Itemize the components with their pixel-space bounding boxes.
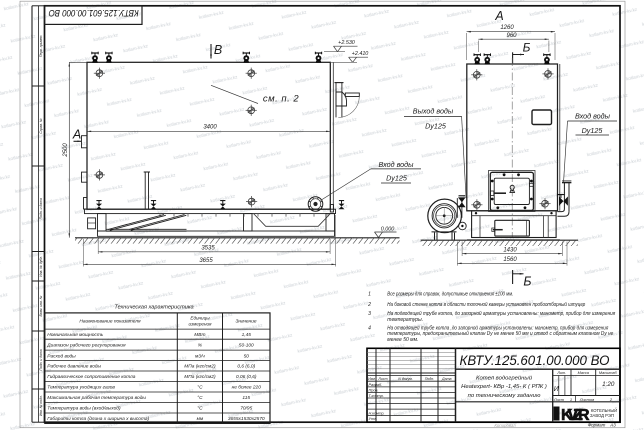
svg-text:Лист: Лист: [553, 397, 565, 402]
svg-text:1560: 1560: [503, 257, 517, 263]
svg-text:Справ. №: Справ. №: [39, 118, 43, 134]
svg-text:см. п. 2: см. п. 2: [263, 94, 300, 105]
svg-text:КВТУ.125.601.00.000 ВО: КВТУ.125.601.00.000 ВО: [49, 8, 139, 18]
svg-text:Рабочее давление воды: Рабочее давление воды: [47, 364, 101, 370]
svg-text:Единицы: Единицы: [190, 315, 210, 320]
svg-text:Dy125: Dy125: [386, 174, 408, 183]
svg-text:N докум.: N докум.: [398, 377, 413, 381]
svg-text:Вход воды: Вход воды: [575, 111, 611, 120]
svg-text:Техническая характеристика: Техническая характеристика: [114, 304, 193, 310]
svg-text:МПа (кгс/см2): МПа (кгс/см2): [184, 374, 216, 380]
svg-text:Инв. № дубл.: Инв. № дубл.: [39, 256, 43, 277]
svg-text:Копировал: Копировал: [494, 423, 516, 428]
svg-text:1260: 1260: [500, 25, 514, 31]
svg-text:+2.410: +2.410: [352, 51, 369, 57]
svg-text:+2.530: +2.530: [338, 40, 355, 46]
svg-text:Утв.: Утв.: [369, 417, 378, 421]
svg-text:Масштаб: Масштаб: [599, 371, 618, 375]
svg-text:1,45: 1,45: [242, 332, 252, 338]
svg-text:Лит.: Лит.: [556, 371, 566, 375]
svg-text:Б: Б: [523, 275, 531, 289]
svg-text:3: 3: [368, 311, 371, 317]
svg-text:температуры, предохранительный: температуры, предохранительный клапан Dу…: [387, 330, 613, 337]
svg-text:50: 50: [244, 353, 250, 359]
svg-text:Подп. и дата: Подп. и дата: [39, 349, 43, 370]
svg-text:Значение: Значение: [235, 319, 256, 325]
svg-text:Dy125: Dy125: [582, 126, 604, 135]
svg-text:%: %: [198, 343, 203, 349]
svg-text:0,6 (6,0): 0,6 (6,0): [237, 364, 255, 370]
svg-text:0.000: 0.000: [381, 226, 395, 232]
svg-text:3655х1530х2570: 3655х1530х2570: [228, 416, 265, 422]
svg-text:Температура уходящих газов: Температура уходящих газов: [47, 385, 115, 391]
svg-text:Перв. примен.: Перв. примен.: [39, 35, 43, 58]
svg-text:Наименование показателя: Наименование показателя: [79, 319, 141, 325]
svg-text:Подп.: Подп.: [425, 377, 435, 381]
svg-text:Подп. и дата: Подп. и дата: [39, 198, 43, 219]
svg-text:МВт: МВт: [194, 332, 205, 338]
svg-text:мм: мм: [197, 417, 204, 422]
svg-text:температуры.: температуры.: [387, 317, 423, 323]
svg-text:1: 1: [570, 397, 572, 402]
svg-text:Котел водогрейный: Котел водогрейный: [476, 374, 533, 381]
svg-text:Масса: Масса: [578, 371, 589, 375]
svg-text:ЗАВОД РЭП: ЗАВОД РЭП: [590, 413, 614, 418]
svg-text:В: В: [214, 43, 222, 57]
svg-text:3400: 3400: [203, 125, 217, 131]
svg-text:Выход воды: Выход воды: [413, 107, 454, 116]
svg-text:Инв. № подл.: Инв. № подл.: [39, 395, 43, 416]
svg-text:Н.контр.: Н.контр.: [369, 412, 385, 416]
svg-text:А3: А3: [609, 423, 616, 428]
svg-text:А: А: [494, 9, 503, 23]
svg-text:Изм: Изм: [368, 377, 375, 381]
svg-text:°С: °С: [197, 385, 203, 391]
svg-text:3655: 3655: [199, 258, 213, 264]
svg-text:Вход воды: Вход воды: [379, 160, 415, 169]
svg-text:Dy125: Dy125: [425, 122, 447, 131]
svg-text:Разраб.: Разраб.: [369, 383, 383, 387]
svg-text:Листов: Листов: [579, 397, 595, 402]
svg-text:2500: 2500: [63, 143, 69, 158]
svg-text:Heatexpert- КВр -1,45- К ( РПК: Heatexpert- КВр -1,45- К ( РПК ): [461, 384, 547, 390]
svg-text:А: А: [72, 128, 81, 142]
svg-text:Дата: Дата: [441, 377, 451, 381]
svg-text:менее 50 мм.: менее 50 мм.: [387, 337, 418, 343]
svg-text:Максимальная рабочая температу: Максимальная рабочая температура воды: [47, 395, 146, 401]
svg-text:KVZR: KVZR: [561, 407, 590, 424]
svg-text:не более 220: не более 220: [232, 385, 262, 391]
svg-text:0,06 (0,6): 0,06 (0,6): [236, 374, 257, 380]
svg-text:МПа (кгс/см2): МПа (кгс/см2): [184, 364, 216, 370]
svg-text:Гидравлическое сопротивление к: Гидравлическое сопротивление котла: [47, 374, 135, 380]
svg-text:115: 115: [242, 395, 250, 401]
svg-text:по техническому заданию: по техническому заданию: [468, 393, 541, 399]
svg-text:Т.контр.: Т.контр.: [369, 394, 384, 398]
svg-text:70/95: 70/95: [240, 406, 252, 412]
svg-text:На боковой стенке котла в обла: На боковой стенке котла в области топочн…: [387, 301, 585, 308]
svg-text:1: 1: [368, 292, 371, 298]
svg-text:°С: °С: [197, 406, 203, 412]
svg-text:КВТУ.125.601.00.000 ВО: КВТУ.125.601.00.000 ВО: [460, 353, 610, 368]
svg-text:Б: Б: [523, 41, 531, 55]
svg-text:Все размеры для справок, допус: Все размеры для справок, допустимые откл…: [387, 292, 513, 298]
svg-text:3535: 3535: [201, 246, 215, 252]
svg-text:Формат: Формат: [588, 423, 606, 428]
svg-text:960: 960: [506, 33, 517, 39]
svg-text:Пров.: Пров.: [369, 388, 379, 392]
svg-text:м3/ч: м3/ч: [195, 353, 205, 359]
svg-text:°С: °С: [197, 395, 203, 401]
svg-text:Температура воды (вход/выход): Температура воды (вход/выход): [47, 406, 121, 412]
svg-text:Расход воды: Расход воды: [47, 353, 76, 359]
svg-text:На подводящей трубе котла, до: На подводящей трубе котла, до запорной а…: [387, 310, 615, 317]
svg-text:1:20: 1:20: [602, 381, 615, 388]
svg-text:4: 4: [368, 326, 371, 332]
svg-text:измерения: измерения: [189, 322, 213, 327]
svg-text:Габариты котла (длина х ширина: Габариты котла (длина х ширина х высота): [47, 416, 149, 422]
svg-text:1430: 1430: [503, 247, 517, 253]
svg-text:Номинальная мощность: Номинальная мощность: [47, 332, 104, 338]
svg-text:2: 2: [367, 302, 371, 308]
svg-text:Взам. инв. №: Взам. инв. №: [39, 295, 43, 316]
svg-text:Диапазон рабочего регулировани: Диапазон рабочего регулирования: [46, 343, 126, 349]
svg-text:50-100: 50-100: [239, 343, 254, 349]
svg-text:Лист: Лист: [377, 377, 387, 381]
